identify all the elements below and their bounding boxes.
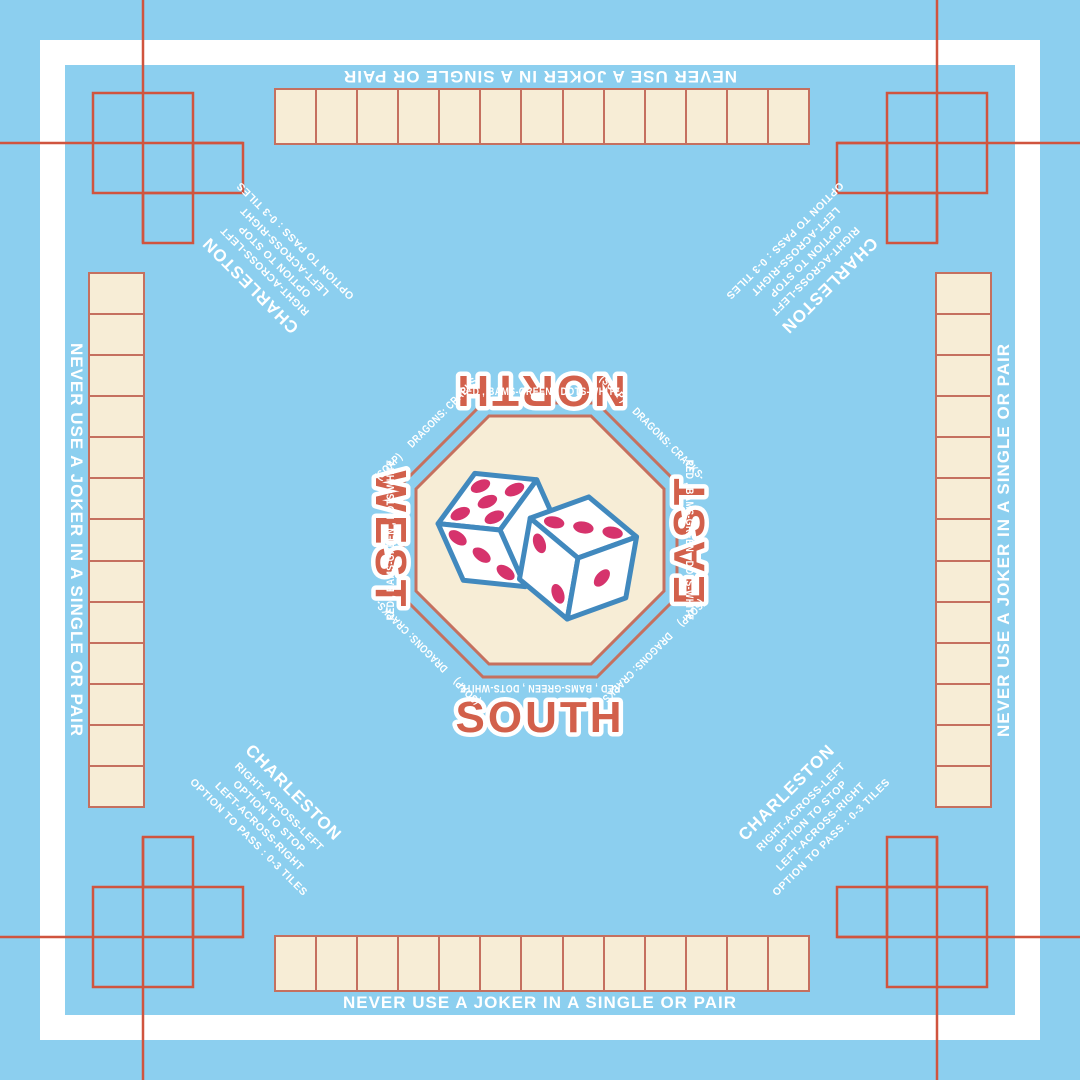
tile-slot[interactable] bbox=[90, 477, 143, 518]
joker-rule-text-bottom: NEVER USE A JOKER IN A SINGLE OR PAIR bbox=[343, 993, 737, 1013]
tile-slot[interactable] bbox=[767, 937, 808, 990]
tile-slot[interactable] bbox=[937, 436, 990, 477]
tile-slot[interactable] bbox=[937, 560, 990, 601]
tile-rack-west bbox=[88, 272, 145, 808]
tile-slot[interactable] bbox=[90, 313, 143, 354]
joker-rule-text-top: NEVER USE A JOKER IN A SINGLE OR PAIR bbox=[343, 66, 737, 86]
tile-slot[interactable] bbox=[356, 90, 397, 143]
tile-slot[interactable] bbox=[937, 274, 990, 313]
tile-slot[interactable] bbox=[937, 518, 990, 559]
tile-slot[interactable] bbox=[315, 937, 356, 990]
tile-slot[interactable] bbox=[90, 274, 143, 313]
tile-slot[interactable] bbox=[90, 518, 143, 559]
tile-slot[interactable] bbox=[397, 937, 438, 990]
tile-slot[interactable] bbox=[90, 765, 143, 806]
tile-slot[interactable] bbox=[90, 601, 143, 642]
tile-slot[interactable] bbox=[603, 937, 644, 990]
mahjong-mat: NORTH SOUTH WEST EAST NEVER USE A JOKER … bbox=[0, 0, 1080, 1080]
tile-slot[interactable] bbox=[644, 937, 685, 990]
tile-slot[interactable] bbox=[937, 354, 990, 395]
joker-rule-text-left: NEVER USE A JOKER IN A SINGLE OR PAIR bbox=[66, 343, 86, 737]
tile-slot[interactable] bbox=[479, 937, 520, 990]
tile-slot[interactable] bbox=[603, 90, 644, 143]
tile-slot[interactable] bbox=[356, 937, 397, 990]
tile-slot[interactable] bbox=[479, 90, 520, 143]
tile-rack-south bbox=[274, 935, 810, 992]
tile-slot[interactable] bbox=[520, 937, 561, 990]
dragon-colors-text-west: RED , BAMS-GREEN , DOTS-WHITE bbox=[385, 460, 397, 621]
tile-slot[interactable] bbox=[276, 90, 315, 143]
corner-cross-top-right bbox=[837, 0, 1080, 243]
tile-rack-north bbox=[274, 88, 810, 145]
corner-cross-bottom-left bbox=[0, 837, 243, 1080]
tile-slot[interactable] bbox=[90, 395, 143, 436]
tile-slot[interactable] bbox=[438, 937, 479, 990]
tile-slot[interactable] bbox=[937, 601, 990, 642]
tile-slot[interactable] bbox=[937, 642, 990, 683]
tile-rack-east bbox=[935, 272, 992, 808]
tile-slot[interactable] bbox=[937, 395, 990, 436]
tile-slot[interactable] bbox=[937, 765, 990, 806]
tile-slot[interactable] bbox=[562, 937, 603, 990]
corner-cross-top-left bbox=[0, 0, 243, 243]
corner-cross-bottom-right bbox=[837, 837, 1080, 1080]
tile-slot[interactable] bbox=[726, 90, 767, 143]
tile-slot[interactable] bbox=[315, 90, 356, 143]
tile-slot[interactable] bbox=[937, 477, 990, 518]
dragon-colors-text-north: RED , BAMS-GREEN , DOTS-WHITE bbox=[460, 386, 621, 398]
tile-slot[interactable] bbox=[276, 937, 315, 990]
tile-slot[interactable] bbox=[937, 683, 990, 724]
tile-slot[interactable] bbox=[520, 90, 561, 143]
decor-layer: NORTH SOUTH WEST EAST bbox=[0, 0, 1080, 1080]
tile-slot[interactable] bbox=[90, 683, 143, 724]
tile-slot[interactable] bbox=[685, 90, 726, 143]
tile-slot[interactable] bbox=[90, 436, 143, 477]
tile-slot[interactable] bbox=[397, 90, 438, 143]
tile-slot[interactable] bbox=[685, 937, 726, 990]
joker-rule-text-right: NEVER USE A JOKER IN A SINGLE OR PAIR bbox=[994, 343, 1014, 737]
dragon-colors-text-east: RED , BAMS-GREEN , DOTS-WHITE bbox=[683, 460, 695, 621]
tile-slot[interactable] bbox=[562, 90, 603, 143]
tile-slot[interactable] bbox=[767, 90, 808, 143]
tile-slot[interactable] bbox=[90, 724, 143, 765]
tile-slot[interactable] bbox=[644, 90, 685, 143]
tile-slot[interactable] bbox=[937, 724, 990, 765]
tile-slot[interactable] bbox=[937, 313, 990, 354]
dragon-colors-text-south: RED , BAMS-GREEN , DOTS-WHITE bbox=[460, 682, 621, 694]
tile-slot[interactable] bbox=[438, 90, 479, 143]
tile-slot[interactable] bbox=[726, 937, 767, 990]
tile-slot[interactable] bbox=[90, 642, 143, 683]
tile-slot[interactable] bbox=[90, 354, 143, 395]
tile-slot[interactable] bbox=[90, 560, 143, 601]
